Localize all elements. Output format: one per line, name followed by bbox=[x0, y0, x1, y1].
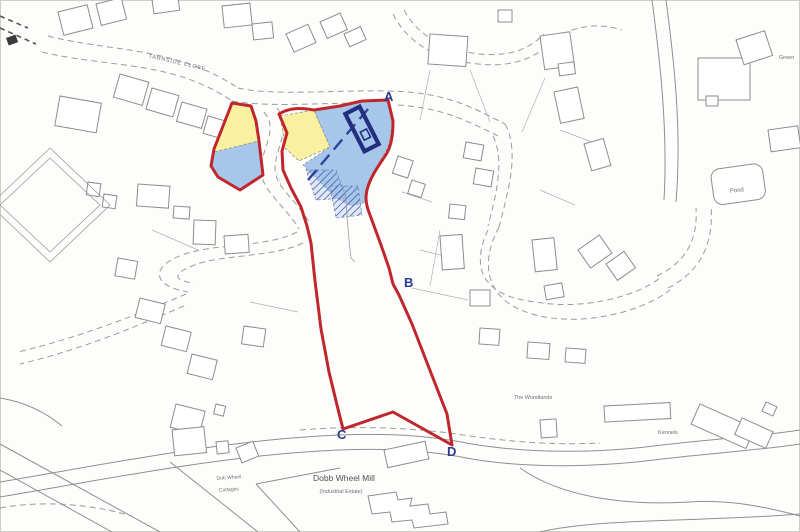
building-outlines bbox=[0, 0, 800, 528]
boundary-marker-c: C bbox=[337, 427, 347, 442]
building bbox=[236, 441, 259, 463]
street-label-tarnside-close: TARNSIDE CLOSE bbox=[148, 53, 207, 72]
building bbox=[584, 138, 611, 170]
building bbox=[463, 142, 484, 161]
building bbox=[473, 168, 494, 187]
building bbox=[55, 96, 102, 133]
building bbox=[224, 234, 249, 254]
building bbox=[698, 58, 750, 100]
building bbox=[554, 87, 584, 123]
building bbox=[146, 88, 179, 117]
industrial-estate-label: (Industrial Estate) bbox=[319, 489, 362, 495]
building bbox=[604, 403, 671, 422]
building bbox=[527, 342, 550, 359]
building bbox=[532, 238, 557, 272]
building bbox=[479, 328, 500, 345]
road-name-illegible: ·········· bbox=[274, 171, 284, 189]
road-network bbox=[0, 10, 711, 516]
building bbox=[470, 290, 490, 306]
dobb-wheel-mill-label: Dobb Wheel Mill bbox=[313, 473, 375, 483]
building bbox=[392, 156, 413, 178]
building bbox=[606, 251, 635, 280]
building bbox=[565, 348, 586, 363]
reservoir-enclosure bbox=[0, 148, 110, 262]
building bbox=[428, 34, 468, 67]
building bbox=[136, 184, 169, 208]
building bbox=[152, 0, 180, 14]
building bbox=[115, 258, 138, 279]
green-partial-label: Green bbox=[779, 55, 794, 61]
building bbox=[135, 298, 165, 324]
building bbox=[96, 0, 127, 25]
building bbox=[368, 492, 448, 528]
building bbox=[762, 402, 777, 416]
building bbox=[113, 74, 148, 105]
building bbox=[384, 441, 429, 467]
building bbox=[498, 10, 512, 22]
hedge-line bbox=[0, 16, 36, 44]
building bbox=[216, 441, 229, 454]
building bbox=[252, 22, 274, 40]
building bbox=[102, 194, 117, 209]
building bbox=[540, 419, 557, 438]
building bbox=[286, 24, 316, 52]
map-canvas: TARNSIDE CLOSE ·········· Pond The Woodl… bbox=[0, 0, 800, 532]
building bbox=[558, 62, 576, 76]
boundary-marker-d: D bbox=[447, 444, 456, 459]
building bbox=[544, 283, 564, 300]
building bbox=[187, 354, 217, 380]
site-location-plan: TARNSIDE CLOSE ·········· Pond The Woodl… bbox=[0, 0, 800, 532]
kennels-label: Kennels bbox=[658, 430, 678, 436]
building bbox=[161, 326, 191, 352]
building bbox=[449, 204, 466, 220]
building bbox=[222, 3, 252, 28]
building bbox=[768, 126, 800, 152]
building bbox=[176, 102, 207, 128]
dob-wheel-cottages-label-line1: Dob Wheel bbox=[216, 474, 241, 482]
building bbox=[193, 220, 216, 245]
pond-outline bbox=[710, 163, 767, 206]
building bbox=[320, 13, 347, 38]
building bbox=[706, 96, 718, 106]
building bbox=[241, 326, 265, 347]
building bbox=[172, 427, 207, 456]
dob-wheel-cottages-label-line2: Cottages bbox=[219, 486, 240, 493]
building bbox=[58, 5, 93, 36]
building bbox=[214, 404, 226, 416]
the-woodlands-label: The Woodlands bbox=[514, 395, 553, 401]
boundary-marker-b: B bbox=[404, 275, 413, 290]
building bbox=[440, 234, 464, 269]
boundary-marker-a: A bbox=[384, 89, 394, 104]
building bbox=[173, 206, 190, 219]
building bbox=[6, 35, 18, 46]
